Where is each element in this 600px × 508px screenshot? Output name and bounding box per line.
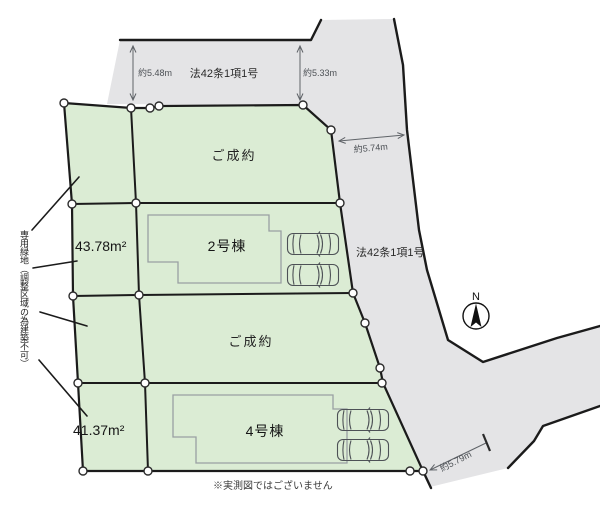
boundary-point bbox=[141, 379, 149, 387]
boundary-point bbox=[155, 102, 163, 110]
plot-divider-1-2 bbox=[72, 203, 340, 204]
boundary-point bbox=[419, 467, 427, 475]
boundary-point bbox=[135, 291, 143, 299]
boundary-point bbox=[376, 364, 384, 372]
dim-label-top-left: 約5.48m bbox=[138, 67, 172, 78]
boundary-point bbox=[144, 467, 152, 475]
boundary-point bbox=[146, 104, 154, 112]
plot-3-status: ご成約 bbox=[228, 334, 273, 349]
dim-label-top-right: 約5.33m bbox=[303, 67, 337, 78]
boundary-point bbox=[299, 101, 307, 109]
boundary-point bbox=[361, 319, 369, 327]
green-strip-note: 専用緑地（調整区域の為建築不可） bbox=[15, 230, 32, 376]
plot-2-area: 43.78m² bbox=[75, 238, 127, 254]
compass-north-label: N bbox=[472, 291, 480, 303]
road-law-label-right: 法42条1項1号 bbox=[356, 245, 424, 259]
disclaimer-note: ※実測図ではございません bbox=[213, 479, 333, 492]
plot-map-page: N 約5.48m 法42条1項1号 bbox=[0, 0, 600, 508]
boundary-point bbox=[336, 199, 344, 207]
road-law-label-top: 法42条1項1号 bbox=[190, 66, 258, 80]
boundary-point bbox=[406, 467, 414, 475]
boundary-point bbox=[60, 99, 68, 107]
boundary-point bbox=[127, 104, 135, 112]
boundary-point bbox=[327, 126, 335, 134]
plot-4-area: 41.37m² bbox=[73, 422, 125, 438]
boundary-point bbox=[74, 379, 82, 387]
plot-1-status: ご成約 bbox=[211, 148, 256, 163]
plot-map: N 約5.48m 法42条1項1号 bbox=[0, 0, 600, 508]
road-edge-top bbox=[120, 20, 321, 40]
leader-line bbox=[33, 261, 77, 268]
boundary-point bbox=[132, 199, 140, 207]
plot-4-building: 4号棟 bbox=[246, 423, 285, 439]
compass-icon: N bbox=[463, 291, 489, 329]
boundary-point bbox=[79, 467, 87, 475]
boundary-point bbox=[378, 379, 386, 387]
boundary-point bbox=[349, 289, 357, 297]
boundary-point bbox=[68, 200, 76, 208]
boundary-point bbox=[69, 292, 77, 300]
plot-2-building: 2号棟 bbox=[208, 238, 247, 254]
